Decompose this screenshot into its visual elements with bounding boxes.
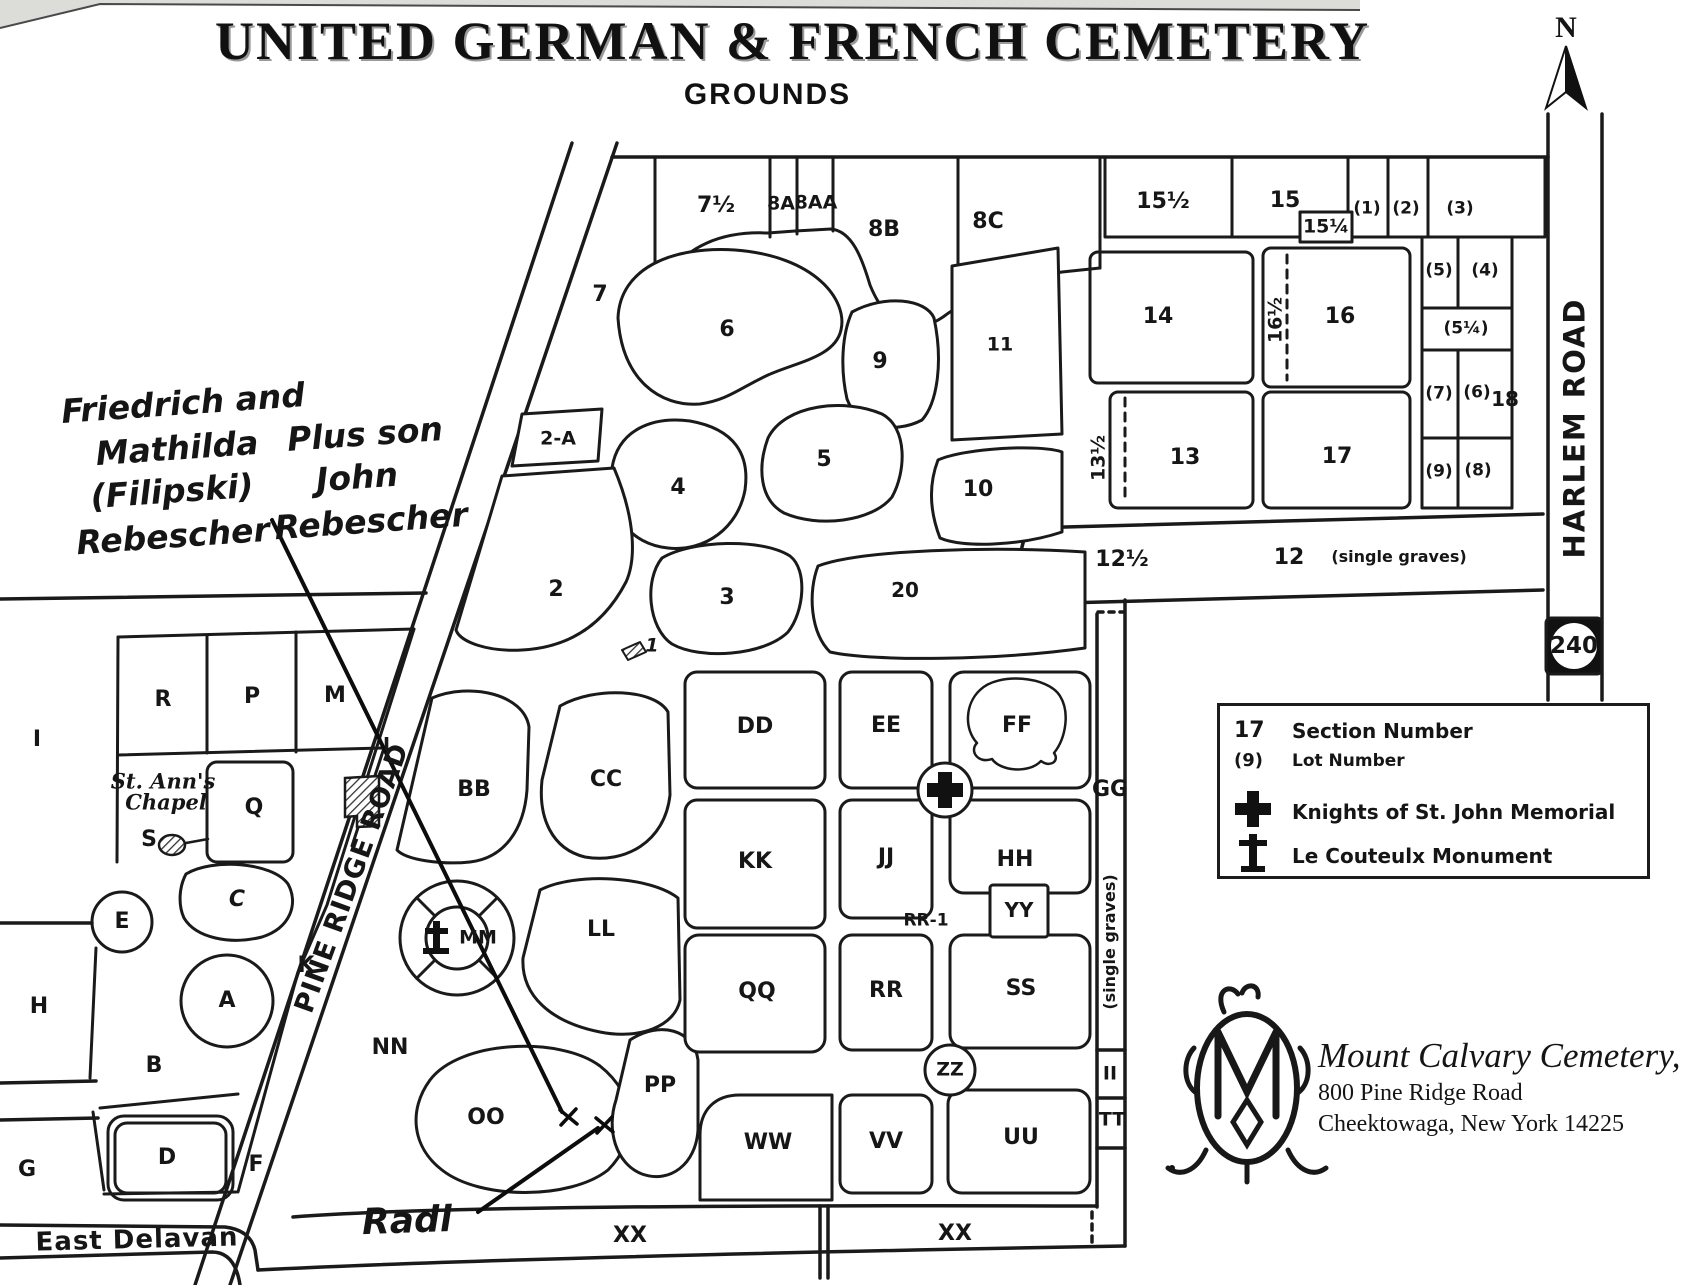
section-label-11: 11 [987,336,1013,355]
section-label-2a: 2-A [540,430,576,449]
section-label-13: 13 [1170,447,1201,469]
section-label-7half: 7½ [697,195,735,217]
st-anns-chapel-label-2: Chapel [125,790,207,815]
annotation-radl: Radl [361,1199,453,1243]
lot-label-5quarter: (5¼) [1444,321,1489,338]
legend-lot-sample: (9) [1234,750,1292,771]
legend-box: 17 Section Number (9) Lot Number Knights… [1217,703,1650,879]
section-label-12: 12 [1274,547,1305,569]
section-label-ii: II [1103,1065,1117,1084]
section-label-e: E [114,911,129,933]
section-label-15quarter: 15¼ [1303,218,1349,237]
harlem-road-label: HARLEM ROAD [1561,297,1590,558]
lot-label-7: (7) [1425,386,1452,403]
legend-row-couteulx: Le Couteulx Monument [1234,832,1552,880]
section-label-14: 14 [1143,306,1174,328]
section-label-pp: PP [644,1075,676,1097]
section-label-m: M [324,685,346,707]
section-label-8a: 8A [767,195,795,214]
section-label-g: G [18,1159,36,1181]
section-label-a: A [218,990,235,1012]
section-label-jj: JJ [878,847,894,869]
section-label-hh: HH [997,849,1034,871]
section-label-i: I [33,729,41,751]
section-label-10: 10 [963,479,994,501]
lot1-marker [622,642,646,660]
section-label-ll: LL [587,919,615,941]
company-address-1: 800 Pine Ridge Road [1318,1080,1683,1107]
legend-lot-label: Lot Number [1292,751,1405,771]
section-label-l: L [383,736,395,755]
section-label-12half: 12½ [1095,549,1148,571]
section-label-s: S [141,829,157,851]
knights-cross-icon [1234,790,1292,834]
section-label-gg: GG [1092,779,1128,801]
compass-north-label: N [1555,11,1577,45]
section-label-qq: QQ [738,981,775,1003]
section-label-q: Q [245,797,264,819]
section-label-5: 5 [816,449,831,471]
map-title: UNITED GERMAN & FRENCH CEMETERY GROUNDS [215,10,1320,112]
annotation-john-2: John [315,455,399,500]
section-label-15: 15 [1270,190,1301,212]
section-label-7: 7 [592,284,607,306]
mount-calvary-logo [1168,986,1326,1182]
section-label-tt: TT [1099,1111,1125,1130]
company-name: Mount Calvary Cemetery, Inc. [1318,1036,1683,1076]
single-graves-note-band: (single graves) [1102,874,1118,1009]
lot-label-1-marker: 1 [645,637,658,656]
section-label-8aa: 8AA [795,194,838,213]
section-label-9: 9 [872,351,887,373]
section-label-rr: RR [869,980,903,1002]
lot-label-4: (4) [1471,263,1498,280]
section-label-4: 4 [670,477,685,499]
section-label-bb: BB [457,779,491,801]
title-main: UNITED GERMAN & FRENCH CEMETERY [215,10,1320,72]
section-label-ss: SS [1006,978,1037,1000]
section-label-13half: 13½ [1090,435,1109,481]
section-label-16half: 16½ [1267,297,1286,343]
section-label-k: K [297,955,314,977]
section-label-zz: ZZ [936,1061,964,1080]
legend-section-label: Section Number [1292,719,1473,743]
compass-arrow-icon [1546,46,1586,108]
strip12-bottom [1028,590,1543,604]
section-label-ee: EE [871,715,901,737]
couteulx-monument-icon [1234,832,1292,880]
section-label-f: F [248,1154,263,1176]
east-delavan-label: East Delavan [35,1224,239,1255]
lot-label-2: (2) [1392,201,1419,218]
section-label-uu: UU [1003,1127,1039,1149]
section-label-r: R [155,689,172,711]
section-label-6: 6 [719,319,734,341]
logo-text-block: Mount Calvary Cemetery, Inc. 800 Pine Ri… [1318,1036,1683,1138]
section-label-c: C [229,889,245,911]
lot-label-5: (5) [1425,263,1452,280]
section-label-3: 3 [719,587,734,609]
lot-label-1: (1) [1353,201,1380,218]
section-label-ww: WW [744,1132,793,1154]
legend-couteulx-label: Le Couteulx Monument [1292,844,1552,868]
legend-row-knights: Knights of St. John Memorial [1234,790,1615,834]
section-label-cc: CC [590,769,622,791]
lot-label-8: (8) [1464,463,1491,480]
section-label-17: 17 [1322,446,1353,468]
section-label-kk: KK [738,851,772,873]
s-monument-blob [159,835,185,855]
legend-row-section: 17 Section Number [1234,718,1473,743]
section-label-yy: YY [1005,900,1034,920]
section-label-vv: VV [869,1131,903,1153]
section-label-d: D [158,1147,176,1169]
title-sub: GROUNDS [215,78,1320,112]
section-label-16: 16 [1325,306,1356,328]
section-label-p: P [244,686,260,708]
strip12-top [1028,514,1543,528]
xx-strip-bottom [258,1246,1125,1270]
section-label-20: 20 [891,580,919,600]
section-label-ff: FF [1002,715,1032,737]
section-label-xx-east: XX [938,1223,972,1245]
lot-label-3: (3) [1446,201,1473,218]
company-address-2: Cheektowaga, New York 14225 [1318,1111,1683,1138]
cemetery-map-page: UNITED GERMAN & FRENCH CEMETERY GROUNDS … [0,0,1683,1285]
section-label-xx-west: XX [613,1225,647,1247]
legend-knights-label: Knights of St. John Memorial [1292,800,1615,824]
section-label-2: 2 [548,579,563,601]
section-label-8c: 8C [972,211,1003,233]
route-240-label: 240 [1550,633,1598,659]
section-label-b: B [146,1055,163,1077]
section-label-15half: 15½ [1136,191,1189,213]
section-label-oo: OO [467,1107,504,1129]
section-label-rr1: RR-1 [903,913,948,930]
section-label-dd: DD [737,716,774,738]
section-label-mm: MM [459,929,497,948]
lot-label-9: (9) [1425,464,1452,481]
single-graves-note-strip: (single graves) [1331,549,1466,565]
lot-label-6: (6) [1463,385,1490,402]
knights-memorial-icon [918,763,972,817]
section-label-h: H [30,996,48,1018]
section-label-18: 18 [1491,389,1519,409]
section-label-8b: 8B [868,219,900,241]
legend-row-lot: (9) Lot Number [1234,750,1405,771]
legend-section-sample: 17 [1234,718,1292,743]
section-label-nn: NN [372,1037,409,1059]
